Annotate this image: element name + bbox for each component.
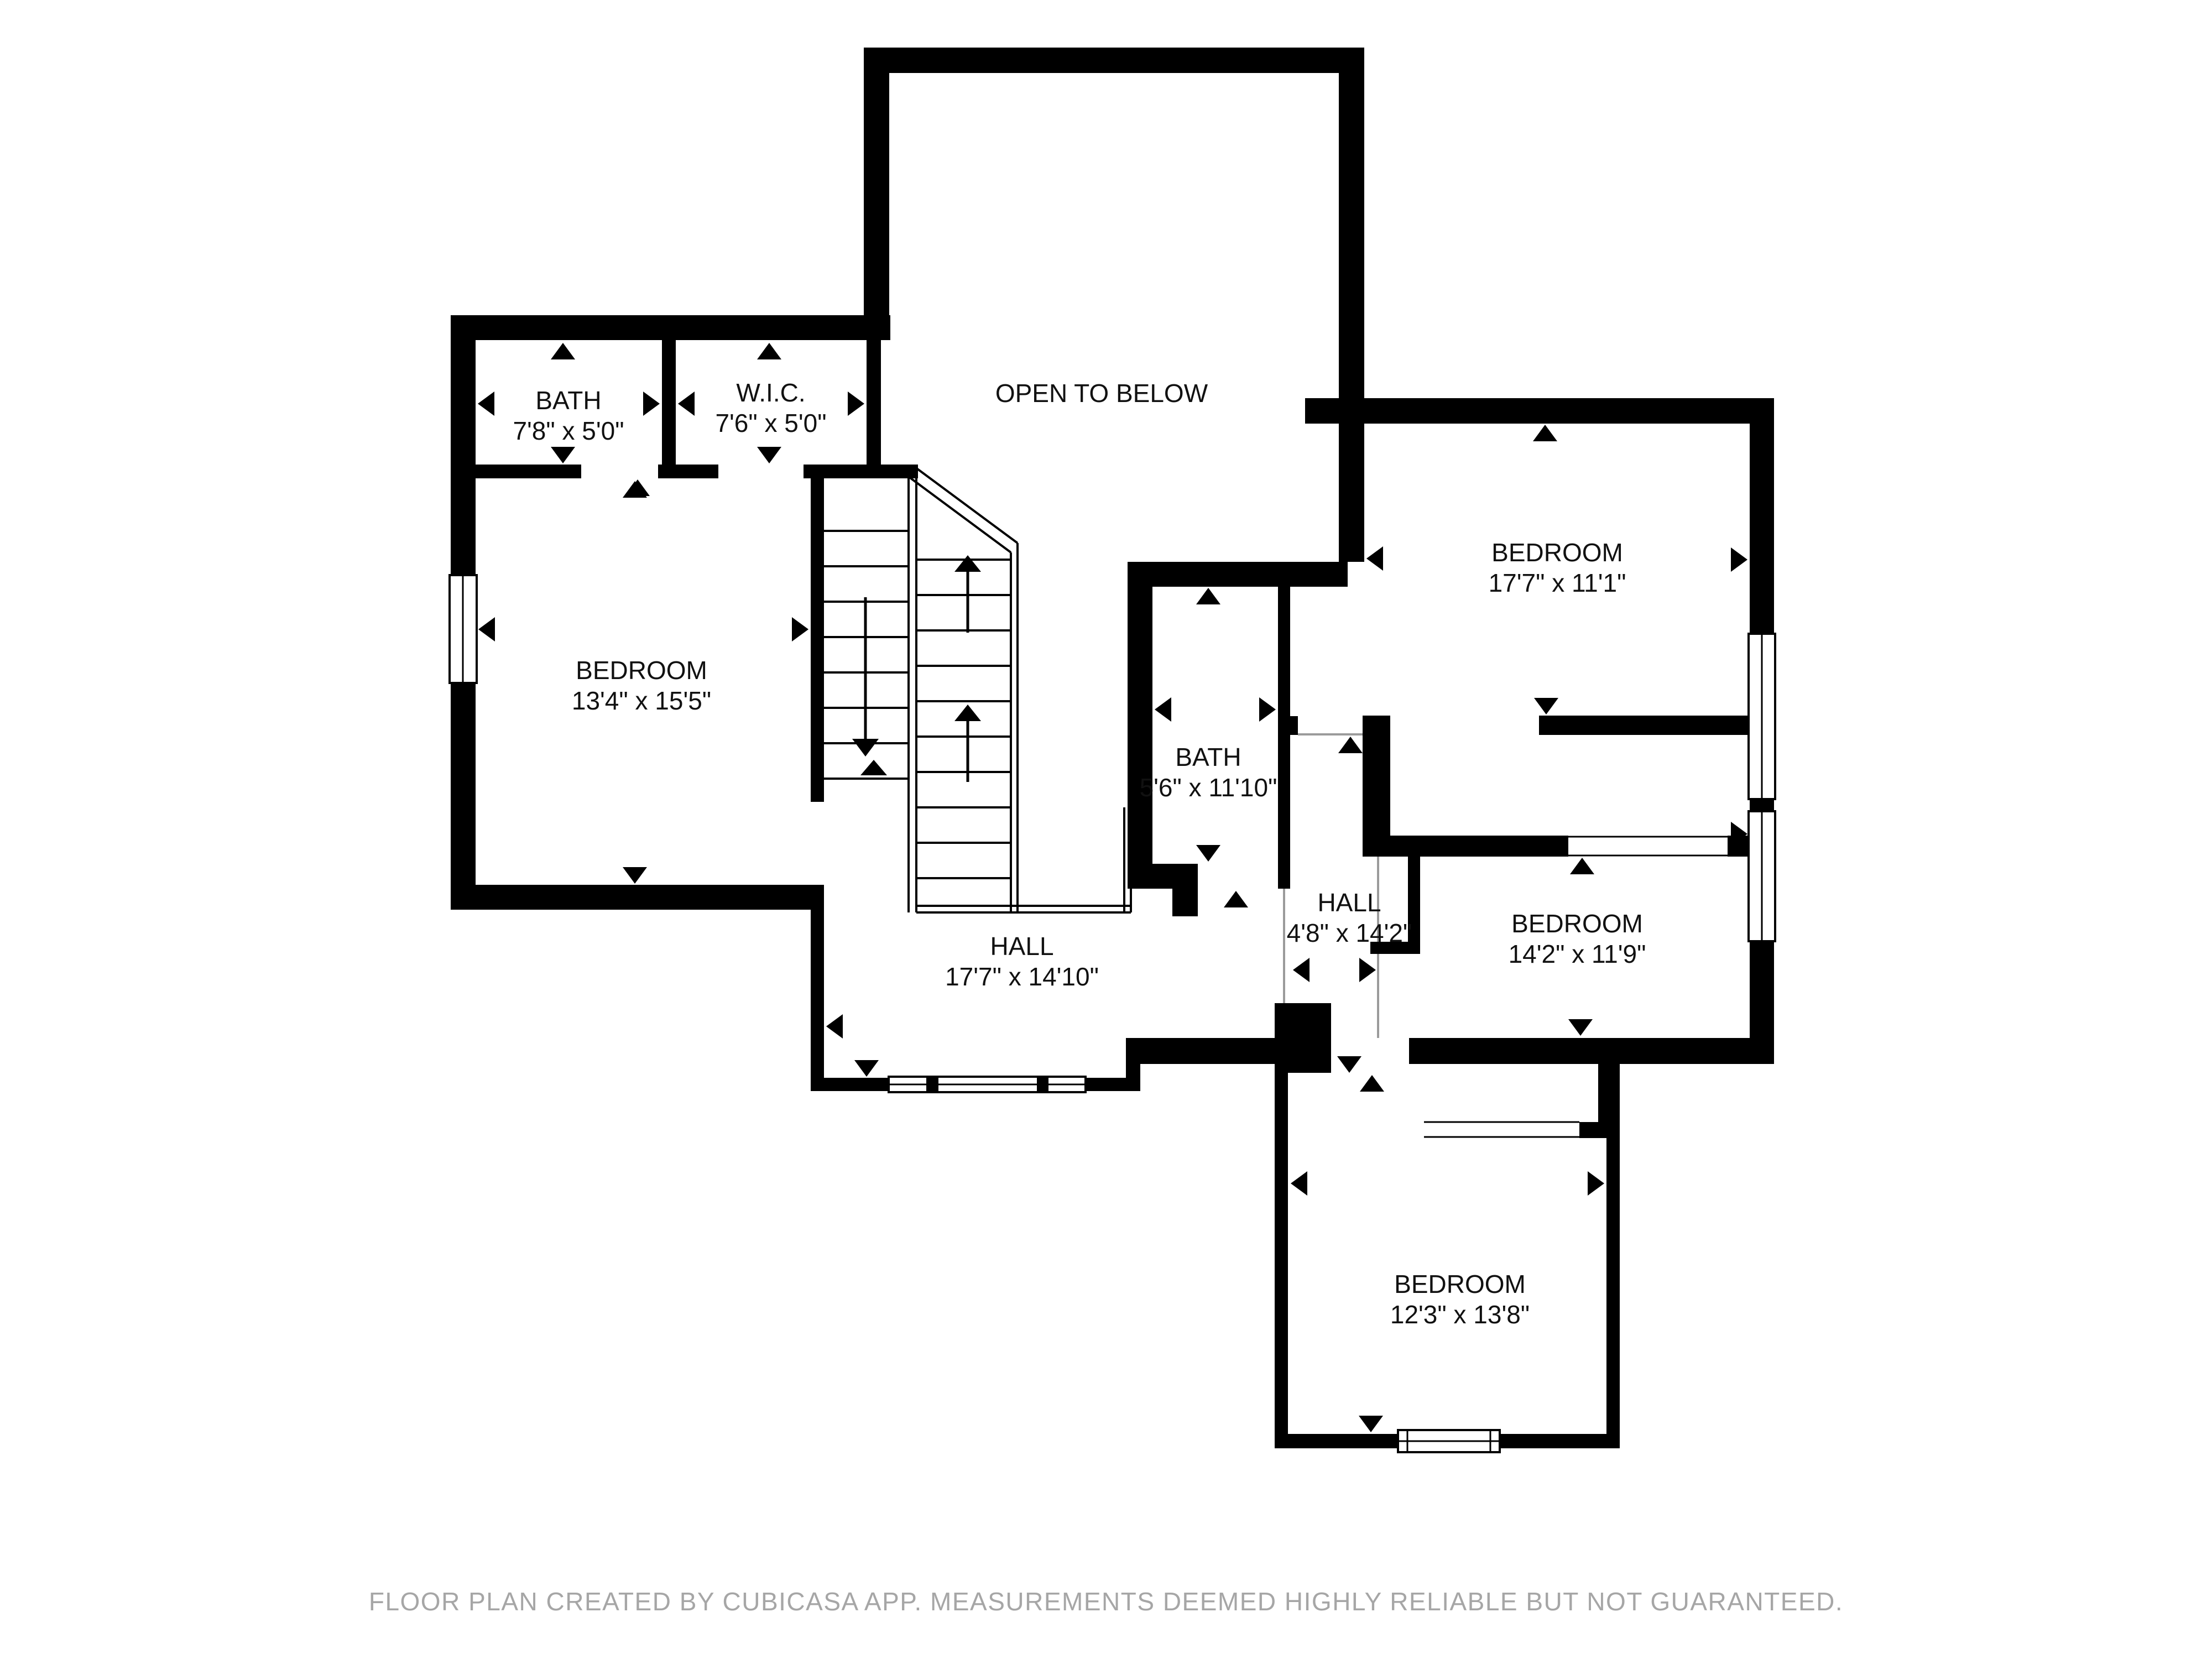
left-arrow-icon [1293,958,1310,982]
room-label-hall-main: HALL 17'7" x 14'10" [945,932,1099,991]
down-arrow-icon [1337,1056,1361,1073]
up-arrow-icon [757,343,781,359]
room-label-bedroom-left: BEDROOM 13'4" x 15'5" [572,656,711,715]
wall [1339,48,1364,562]
up-arrow-icon [1533,425,1557,441]
left-arrow-icon [478,617,495,641]
floor-plan-page: BATH 7'8" x 5'0" W.I.C. 7'6" x 5'0" OPEN… [0,0,2212,1659]
room-name: BEDROOM [576,656,707,685]
room-dims: 7'6" x 5'0" [715,409,826,437]
left-arrow-icon [478,392,494,416]
wall [1539,716,1774,735]
stair-up-arrow [954,555,981,782]
room-name: BEDROOM [1491,538,1623,567]
wall [811,1078,889,1091]
wall [451,683,476,910]
down-arrow-icon [623,867,647,884]
left-arrow-icon [1366,546,1383,571]
room-label-bath-center: BATH 5'6" x 11'10" [1140,743,1277,802]
walls [451,48,1774,1448]
staircase [824,467,1131,912]
room-name: BATH [1175,743,1241,771]
sliding-doors [1424,837,1728,1137]
right-arrow-icon [848,392,864,416]
stair-railing [875,467,1131,912]
wall [1371,836,1568,857]
wall [1498,1434,1620,1448]
wall [658,465,718,478]
up-arrow-icon [1224,891,1248,907]
down-arrow-icon [757,447,781,463]
stair-down-arrow [852,597,887,775]
wall [1275,1073,1288,1448]
down-arrow-icon [1568,1019,1593,1036]
wall [662,340,676,478]
room-label-bath-upper-left: BATH 7'8" x 5'0" [513,386,624,445]
wall [864,48,889,315]
wall [864,48,1364,73]
wall [451,315,476,575]
room-label-bedroom-right: BEDROOM 14'2" x 11'9" [1509,909,1646,968]
right-arrow-icon [1731,547,1747,572]
wall [811,478,824,802]
floor-plan-drawing: BATH 7'8" x 5'0" W.I.C. 7'6" x 5'0" OPEN… [0,0,2212,1659]
wall [1128,562,1348,587]
wall [1128,864,1198,889]
room-label-hall-small: HALL 4'8" x 14'2" [1287,888,1412,947]
left-arrow-icon [1155,697,1171,722]
room-name: HALL [990,932,1053,961]
down-arrow-icon [1196,845,1220,862]
room-name: W.I.C. [736,378,805,407]
wall [451,315,890,340]
wall [811,885,824,1091]
room-dims: 13'4" x 15'5" [572,686,711,715]
room-label-wic: W.I.C. 7'6" x 5'0" [715,378,826,437]
room-dims: 5'6" x 11'10" [1140,773,1277,802]
left-arrow-icon [1291,1171,1307,1196]
room-dims: 17'7" x 11'1" [1489,568,1626,597]
wall [1172,889,1198,916]
footer-disclaimer: FLOOR PLAN CREATED BY CUBICASA APP. MEAS… [369,1587,1843,1616]
wall [1363,716,1390,857]
room-name: BEDROOM [1394,1270,1526,1298]
right-arrow-icon [1259,697,1276,722]
room-name: OPEN TO BELOW [995,379,1208,408]
room-label-bedroom-top-right: BEDROOM 17'7" x 11'1" [1489,538,1626,597]
up-arrow-icon [1196,588,1220,604]
wall [1750,398,1774,634]
room-label-bedroom-bottom: BEDROOM 12'3" x 13'8" [1390,1270,1530,1329]
room-dims: 17'7" x 14'10" [945,962,1099,991]
room-name: BEDROOM [1511,909,1643,938]
left-arrow-icon [826,1014,843,1039]
wall [451,885,824,910]
up-arrow-icon [1570,858,1594,874]
wall [1750,799,1774,811]
up-arrow-icon [551,343,575,359]
window-hall [889,1077,1086,1092]
up-arrow-icon [1360,1075,1384,1092]
right-arrow-icon [1359,958,1376,982]
wall [1126,1038,1140,1091]
right-arrow-icon [643,392,660,416]
up-arrow-icon [1338,737,1363,753]
wall [451,465,581,478]
wall [1606,1064,1620,1448]
room-dims: 14'2" x 11'9" [1509,940,1646,968]
down-arrow-icon [1359,1416,1383,1432]
wall [1140,1038,1331,1064]
wall [1275,1434,1400,1448]
down-arrow-icon [1534,698,1558,714]
room-dims: 7'8" x 5'0" [513,416,624,445]
room-name: BATH [535,386,601,415]
room-dims: 4'8" x 14'2" [1287,919,1412,947]
room-name: HALL [1317,888,1381,917]
wall [1278,562,1290,889]
room-label-open-to-below: OPEN TO BELOW [995,379,1208,408]
room-dims: 12'3" x 13'8" [1390,1300,1530,1329]
left-arrow-icon [678,392,695,416]
window-bottom-bedroom [1398,1430,1500,1452]
right-arrow-icon [1588,1171,1604,1196]
wall [1305,398,1774,424]
up-arrow-icon [625,479,650,496]
down-arrow-icon [551,447,575,463]
wall [1409,1038,1774,1064]
window-right-bedroom [1749,811,1775,941]
right-arrow-icon [792,617,808,641]
wall [1290,716,1298,735]
down-arrow-icon [854,1060,879,1077]
window-left-bedroom [450,575,477,683]
window-top-right-bedroom [1749,634,1775,799]
